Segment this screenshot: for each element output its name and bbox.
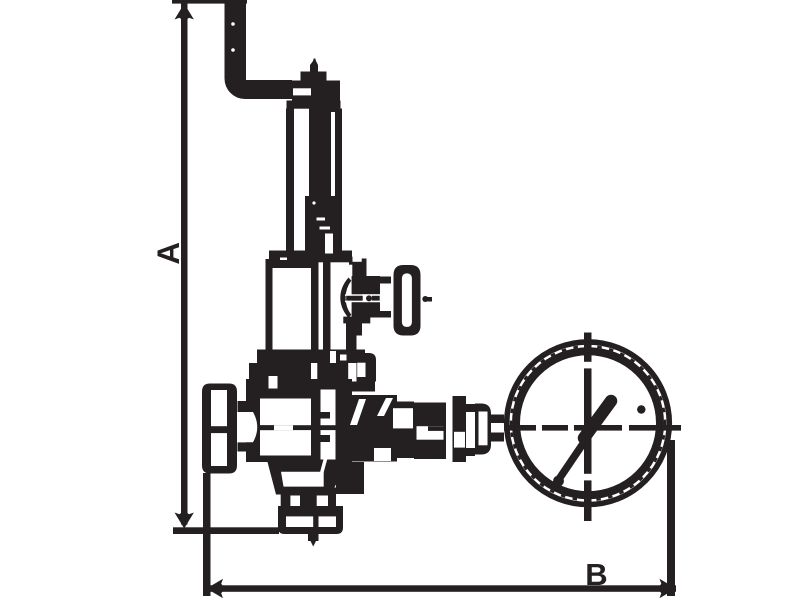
svg-text:A: A: [150, 242, 186, 265]
svg-text:B: B: [585, 557, 607, 592]
